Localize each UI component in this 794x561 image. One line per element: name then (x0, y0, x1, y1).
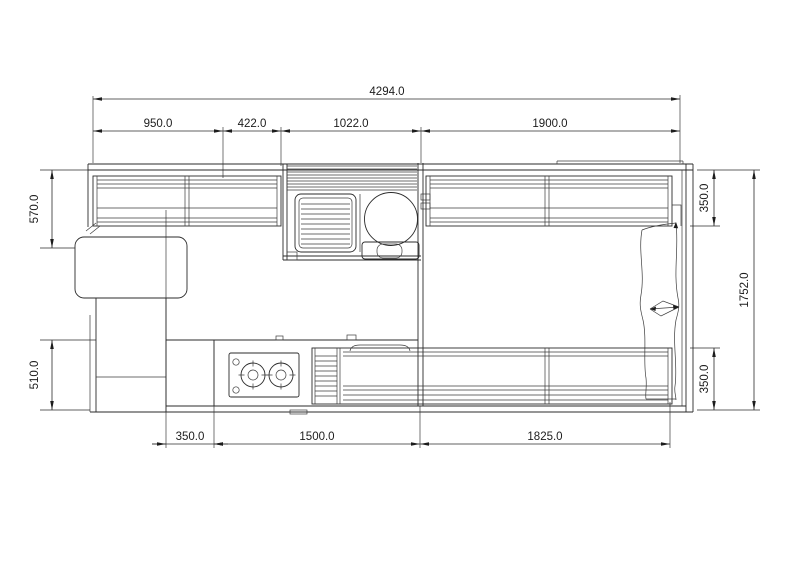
wall-fitting-lower (421, 203, 430, 209)
caravan-floor-plan-canvas: 4294.0 950.0 422.0 1022.0 1900.0 (0, 0, 794, 561)
storage-outline (96, 298, 166, 412)
counter-tab-right (347, 335, 356, 340)
bench-caps-dividers (545, 348, 668, 404)
mattress-roll-left-edge (640, 230, 646, 399)
dim-label-bottom-c: 1825.0 (527, 431, 562, 443)
dim-label-left-top: 570.0 (29, 195, 41, 224)
shower-grate-inner (299, 198, 352, 248)
technical-drawing-page: 4294.0 950.0 422.0 1022.0 1900.0 (0, 0, 794, 561)
dim-total-width: 1752.0 (739, 170, 756, 410)
burner-right-outer (269, 363, 293, 387)
dim-total-length: 4294.0 (93, 86, 680, 101)
bench-outline (93, 176, 281, 226)
dim-right-350-bottom: 350.0 (699, 348, 716, 410)
dim-label-left-bottom: 510.0 (29, 361, 41, 390)
dim-top-segment-422: 422.0 (223, 118, 281, 133)
dim-label-right-bottom: 350.0 (699, 365, 711, 394)
burner-left-ticks (239, 361, 268, 390)
stove-knob-top (233, 359, 239, 365)
bench-caps-dividers (430, 176, 668, 226)
dim-label-top-b: 422.0 (238, 118, 267, 130)
dim-label-bottom-b: 1500.0 (299, 431, 334, 443)
dim-top-segment-1900: 1900.0 (421, 118, 680, 133)
shower-grate-outline (295, 194, 356, 252)
dim-label-top-d: 1900.0 (532, 118, 567, 130)
shower-grate-slats (301, 204, 350, 244)
dim-label-total-width: 1752.0 (739, 272, 751, 307)
bench-caps-dividers (97, 176, 277, 226)
mattress-roll-top-edge (642, 223, 676, 230)
dim-label-top-a: 950.0 (144, 118, 173, 130)
mattress-roll-right-edge (675, 223, 679, 400)
bench-end-block-slats (315, 356, 337, 396)
dim-bottom-1825: 1825.0 (420, 431, 670, 446)
bench-top-right (426, 176, 681, 226)
mid-partition-wall (418, 163, 423, 406)
dim-top-segment-950: 950.0 (93, 118, 223, 133)
bench-slats (97, 180, 277, 222)
dim-label-top-c: 1022.0 (333, 118, 368, 130)
stove-knob-bottom (233, 387, 239, 393)
dimensions: 4294.0 950.0 422.0 1022.0 1900.0 (29, 86, 760, 448)
bathroom-module (283, 164, 430, 260)
bench-outline (312, 348, 672, 404)
dim-right-350-top: 350.0 (699, 170, 716, 226)
dim-bottom-1500: 1500.0 (214, 431, 420, 446)
counter-outline (166, 340, 418, 406)
bench-bottom (312, 348, 672, 404)
burner-left-outer (241, 363, 265, 387)
dim-label-total-length: 4294.0 (369, 86, 404, 98)
dim-label-right-top: 350.0 (699, 184, 711, 213)
dim-top-segment-1022: 1022.0 (281, 118, 421, 133)
counter-tab-left (276, 336, 283, 340)
kitchen-counter (166, 335, 418, 414)
burner-left-inner (248, 370, 258, 380)
shower-base-circle (365, 193, 418, 246)
dim-left-510: 510.0 (29, 340, 54, 410)
bottom-wall (90, 406, 693, 412)
bed-area (640, 222, 679, 400)
bench-corner-piece (672, 205, 681, 226)
right-wall (686, 164, 693, 412)
burner-right-inner (276, 370, 286, 380)
bench-slats (343, 352, 668, 400)
dim-label-bottom-a: 350.0 (176, 431, 205, 443)
left-storage-box (90, 298, 166, 412)
wall-fitting-upper (421, 194, 430, 200)
bench-top-left (86, 176, 281, 234)
burner-right-ticks (267, 361, 296, 390)
fold-out-table (75, 237, 187, 298)
dim-left-570: 570.0 (29, 170, 54, 248)
extension-lines-top (93, 95, 680, 178)
body-walls (88, 161, 693, 412)
